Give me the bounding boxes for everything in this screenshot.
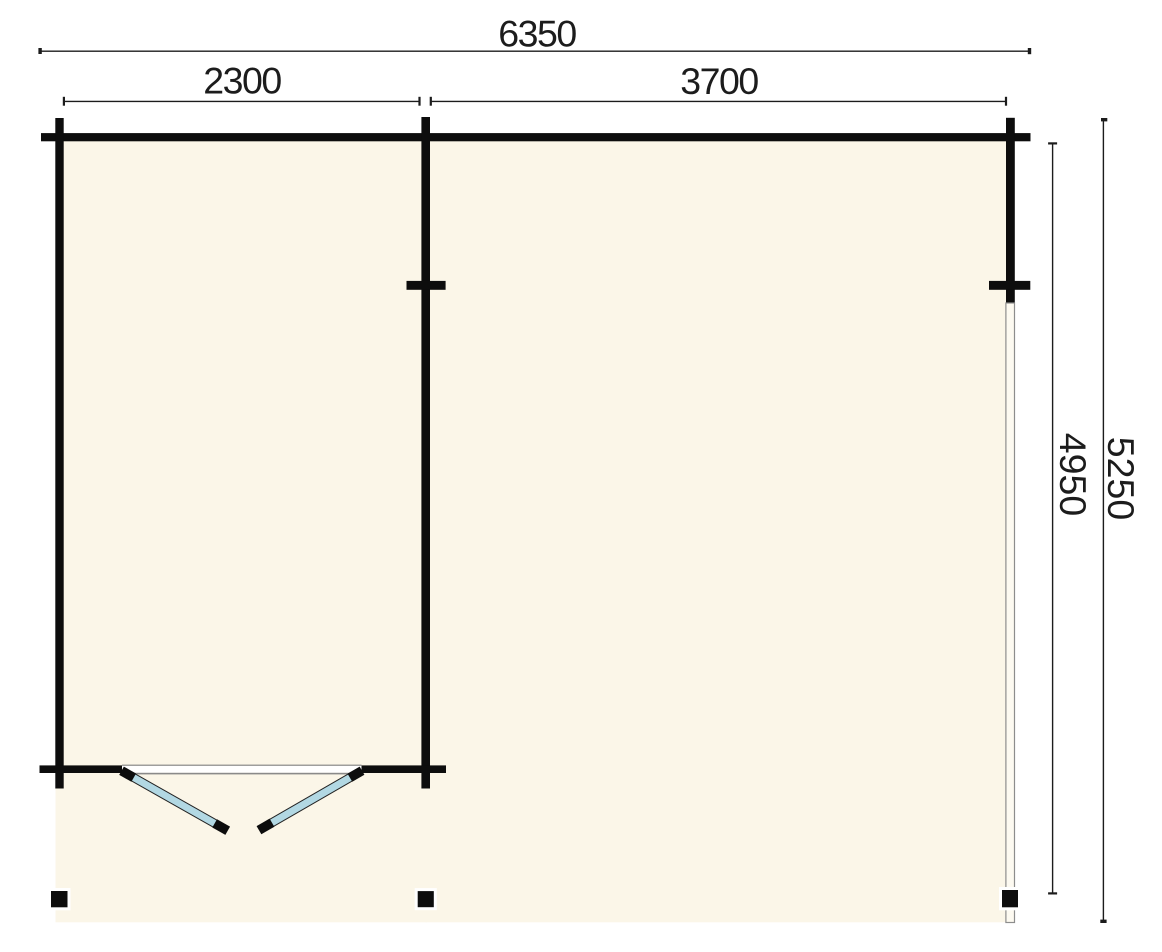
svg-text:4950: 4950 (1052, 433, 1094, 516)
svg-text:6350: 6350 (498, 13, 576, 55)
svg-text:3700: 3700 (680, 60, 758, 102)
svg-text:5250: 5250 (1100, 437, 1142, 520)
svg-text:2300: 2300 (203, 60, 281, 102)
